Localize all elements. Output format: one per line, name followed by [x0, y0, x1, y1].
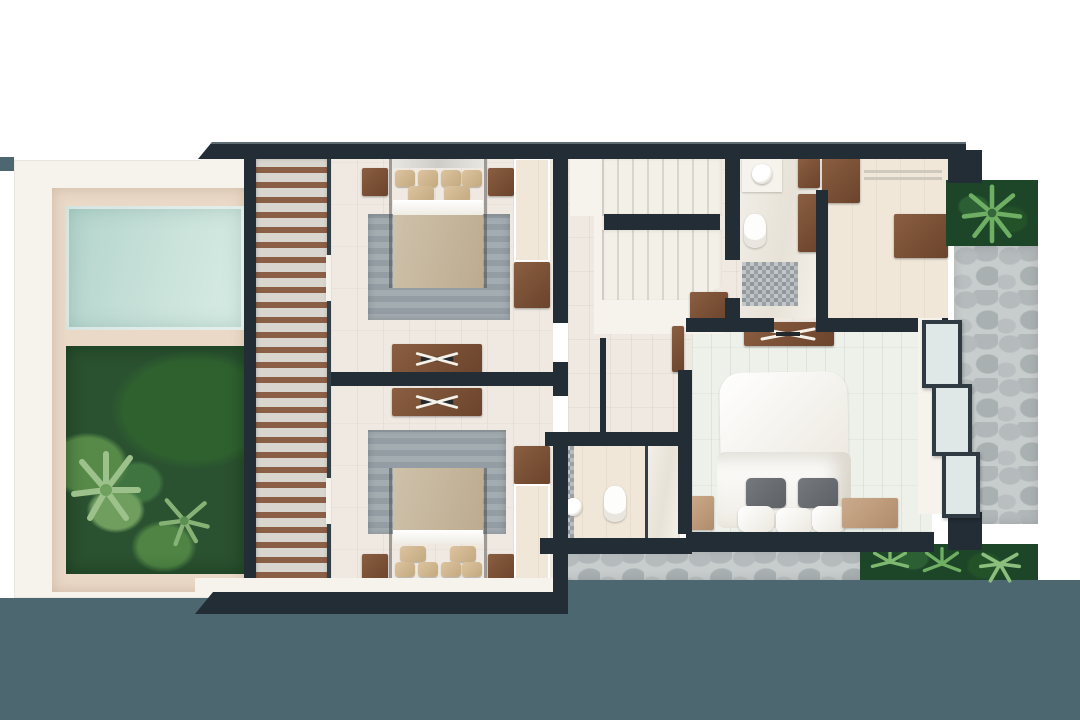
closet-hanging-rod	[864, 177, 942, 180]
floor-plan-canvas	[0, 0, 1080, 720]
walkway-rail	[244, 158, 256, 580]
shared-bathroom-toilet	[604, 486, 626, 522]
north-east-corner-wall	[948, 150, 982, 183]
north-wall	[198, 142, 966, 159]
master-west-wall	[678, 370, 692, 534]
shared-bathroom-shower	[648, 446, 678, 538]
water-feature-bottom	[0, 598, 1080, 720]
bedroom-1-pillow	[418, 170, 438, 187]
bedroom-2-sheet-fold	[393, 530, 483, 544]
bedroom-1-pillow	[395, 170, 415, 187]
bedroom-1-sheet-fold	[393, 200, 483, 215]
bedroom-hall-wall-mid	[553, 362, 568, 396]
bedroom-2-pillow	[400, 546, 426, 562]
master-bathroom-toilet	[744, 214, 766, 248]
bedroom-hall-wall-upper	[553, 157, 568, 323]
bedroom-2-pillow	[395, 562, 415, 577]
palm-plant-icon	[976, 540, 1024, 588]
bedroom-2-blanket	[393, 468, 483, 530]
plunge-pool	[66, 206, 244, 330]
south-wall-master	[686, 532, 934, 552]
bedroom-2-pillow	[462, 562, 482, 577]
bedroom-divider-wall	[331, 372, 553, 386]
bedroom-1-chair-icon	[410, 350, 464, 368]
bedroom-2-wardrobe-shelf	[514, 446, 550, 484]
bedroom-1-pillow	[462, 170, 482, 187]
bedroom-2-pillow	[450, 546, 476, 562]
master-nightstand-right	[842, 498, 898, 528]
bedroom-hall-wall-lower	[553, 438, 568, 614]
master-bathroom-mosaic-floor	[742, 262, 798, 306]
stair-flight-upper	[602, 158, 722, 216]
bedroom-1-bed-post	[484, 158, 487, 288]
south-wall-bedrooms	[195, 592, 563, 614]
master-bathroom-sink	[752, 164, 772, 184]
garden-leaf-plant-icon	[150, 480, 220, 560]
shared-bathroom-north-wall	[545, 432, 692, 446]
bathroom-closet-divider-wall	[816, 190, 828, 318]
bedroom-2-bed-post	[389, 468, 392, 588]
shower-glass-door	[645, 446, 648, 538]
stair-nosing-band	[604, 214, 720, 230]
bay-window-2	[932, 384, 972, 456]
water-sliver-left	[0, 157, 14, 171]
bedroom-1-nightstand-right	[488, 168, 514, 196]
bedroom-1-wardrobe-shelf	[514, 262, 550, 308]
bedroom-1-blanket	[393, 215, 483, 288]
timber-slat-walkway	[256, 158, 328, 592]
bay-window-3	[942, 452, 980, 518]
master-bed-pillow-white	[776, 508, 812, 534]
bedroom-1-wardrobe	[514, 158, 550, 262]
hall-door-leaf	[672, 326, 684, 372]
master-bed-pillow-gray	[798, 478, 838, 508]
garden-leaf-plant-icon	[62, 430, 152, 540]
bedroom-2-chair-icon	[410, 393, 464, 411]
master-bed-pillow-white	[738, 506, 774, 532]
master-north-wall-west	[686, 318, 774, 332]
bay-window-1	[922, 320, 962, 388]
bedroom-1-nightstand-left	[362, 168, 388, 196]
master-bed-pillow-white	[812, 506, 846, 532]
bedroom-2-pillow	[441, 562, 461, 577]
south-terrace-strip	[195, 578, 563, 594]
stair-railing	[600, 338, 606, 440]
closet-wardrobe-b	[894, 214, 948, 258]
palm-plant-icon	[956, 178, 1028, 248]
bedroom-2-pillow	[418, 562, 438, 577]
bedroom-1-bed-post	[389, 158, 392, 288]
stair-bathroom-wall-upper	[725, 157, 740, 260]
bedroom-2-bed-post	[484, 468, 487, 588]
closet-hanging-rod	[864, 170, 942, 173]
master-bathroom-cabinet-upper	[798, 158, 820, 188]
master-bed-pillow-gray	[746, 478, 786, 508]
bedroom-1-pillow	[441, 170, 461, 187]
